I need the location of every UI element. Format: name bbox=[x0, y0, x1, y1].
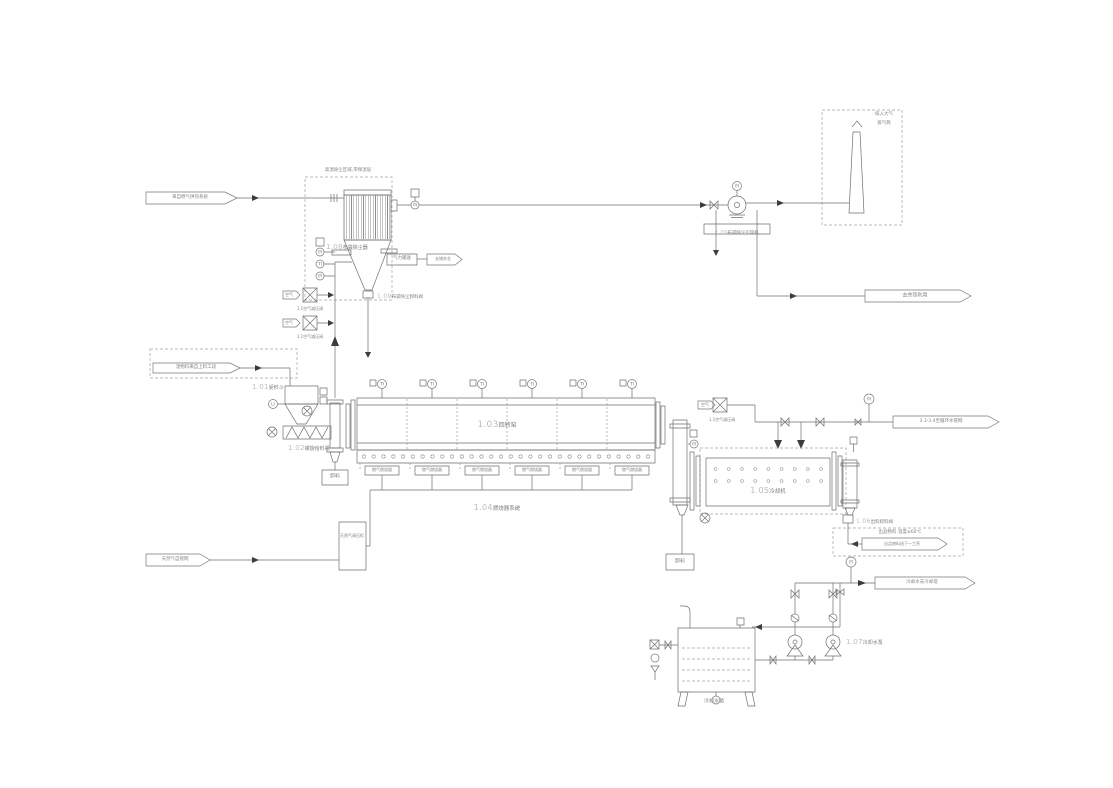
vent-note: 排入大气 bbox=[875, 113, 893, 118]
ash-out-flag-label: 去储灰仓 bbox=[435, 257, 451, 261]
heat-out-flag-label: 去余热利用 bbox=[902, 294, 927, 299]
cooler-label: 1.05冷却机 bbox=[750, 480, 786, 496]
duct-pi2-tag: PI bbox=[318, 274, 322, 279]
air-flag-3: 空气 bbox=[701, 403, 709, 407]
fan-pi-tag: PI bbox=[735, 184, 739, 189]
duct-pi-tag: PI bbox=[318, 250, 322, 255]
burner-label-3: 燃气燃烧器 bbox=[472, 468, 492, 472]
pump-pi-tag: PI bbox=[849, 560, 853, 565]
stack-group bbox=[746, 110, 902, 225]
kiln-ti4-tag: TI bbox=[529, 382, 534, 387]
line-pi-tag: PI bbox=[413, 203, 417, 208]
hopper-label: 1.01受料斗 bbox=[252, 376, 284, 392]
gas-cabinet-label: 天然气调压柜 bbox=[340, 534, 364, 538]
baghouse-note: 高温除尘区域,带保温层 bbox=[325, 169, 371, 174]
pneumatic-box-label: 气力输送 bbox=[393, 257, 411, 262]
product-note: 出品物料 温度≤60℃ bbox=[879, 531, 922, 536]
air-flag-1: 空气 bbox=[285, 293, 293, 297]
burner-label-6: 燃气燃烧器 bbox=[622, 468, 642, 472]
kiln-ti3-tag: TI bbox=[479, 382, 484, 387]
hopper-screw-group bbox=[267, 386, 331, 439]
burner-label-4: 燃气燃烧器 bbox=[522, 468, 542, 472]
cw-network-flag-label: 3.3-3.4至循环水管网 bbox=[920, 420, 963, 425]
burner-system-label: 1.04燃烧器系统 bbox=[474, 497, 521, 513]
fan-label: 1.09布袋除尘引风机 bbox=[715, 221, 759, 237]
outlet-pi-tag: PI bbox=[692, 442, 696, 447]
gas-in-flag-label: 天然气自管网 bbox=[162, 558, 189, 563]
baghouse-filter-bags bbox=[344, 195, 391, 239]
stack-label: 排气筒 bbox=[877, 122, 891, 127]
screw-feeder-label: 1.02螺旋给料机 bbox=[288, 437, 330, 453]
hopper-li-tag: LI bbox=[271, 402, 274, 407]
burner-label-2: 燃气燃烧器 bbox=[422, 468, 442, 472]
air-valve-label-2: 1.1空气减压阀 bbox=[297, 335, 323, 339]
burner-label-1: 燃气燃烧器 bbox=[372, 468, 392, 472]
discharge-valve-label: 1.06出料卸料阀 bbox=[856, 510, 893, 526]
product-out-flag-label: 出品物料送下一工序 bbox=[884, 542, 920, 546]
process-flow-diagram: PI PI TI PI LI TI TI TI TI TI TI PI PI P… bbox=[0, 0, 1113, 788]
baghouse-label: 1.08布袋除尘器 bbox=[326, 236, 368, 252]
cw-pi-tag: PI bbox=[867, 397, 871, 402]
burner-label-5: 燃气燃烧器 bbox=[572, 468, 592, 472]
unload-box-2: 卸料 bbox=[675, 560, 685, 565]
kiln-ti1-tag: TI bbox=[379, 382, 384, 387]
id-fan-group bbox=[397, 182, 971, 303]
product-out-group bbox=[833, 523, 963, 556]
rotary-kiln-group bbox=[346, 380, 655, 547]
baghouse-valve-label: 1.09布袋除尘卸料阀 bbox=[377, 285, 423, 301]
pump-label: 1.07冷却水泵 bbox=[846, 631, 883, 647]
kiln-ti2-tag: TI bbox=[429, 382, 434, 387]
kiln-ti5-tag: TI bbox=[579, 382, 584, 387]
gas-cabinet-group bbox=[146, 522, 366, 570]
fluegas-in-flag-label: 来自燃气供热系统 bbox=[172, 196, 208, 201]
duct-ti-tag: TI bbox=[317, 262, 322, 267]
kiln-label: 1.03回转窑 bbox=[477, 414, 516, 430]
kiln-outlet-head bbox=[656, 402, 698, 570]
air-flag-2: 空气 bbox=[285, 321, 293, 325]
wet-feed-flag-label: 湿物料来自上料工段 bbox=[176, 366, 217, 371]
cw-out-flag-label: 冷却水去冷却塔 bbox=[906, 581, 938, 586]
kiln-burner-ports bbox=[359, 451, 653, 462]
tank-label: 冷却水箱 bbox=[704, 700, 724, 705]
kiln-ti6-tag: TI bbox=[629, 382, 634, 387]
air-valve-label-1: 1.1空气减压阀 bbox=[297, 307, 323, 311]
unload-box-1: 卸料 bbox=[330, 475, 340, 480]
air-valve-label-3: 1.1空气减压阀 bbox=[709, 418, 735, 422]
diagram-linework: PI PI TI PI LI TI TI TI TI TI TI PI PI P… bbox=[0, 0, 1113, 788]
